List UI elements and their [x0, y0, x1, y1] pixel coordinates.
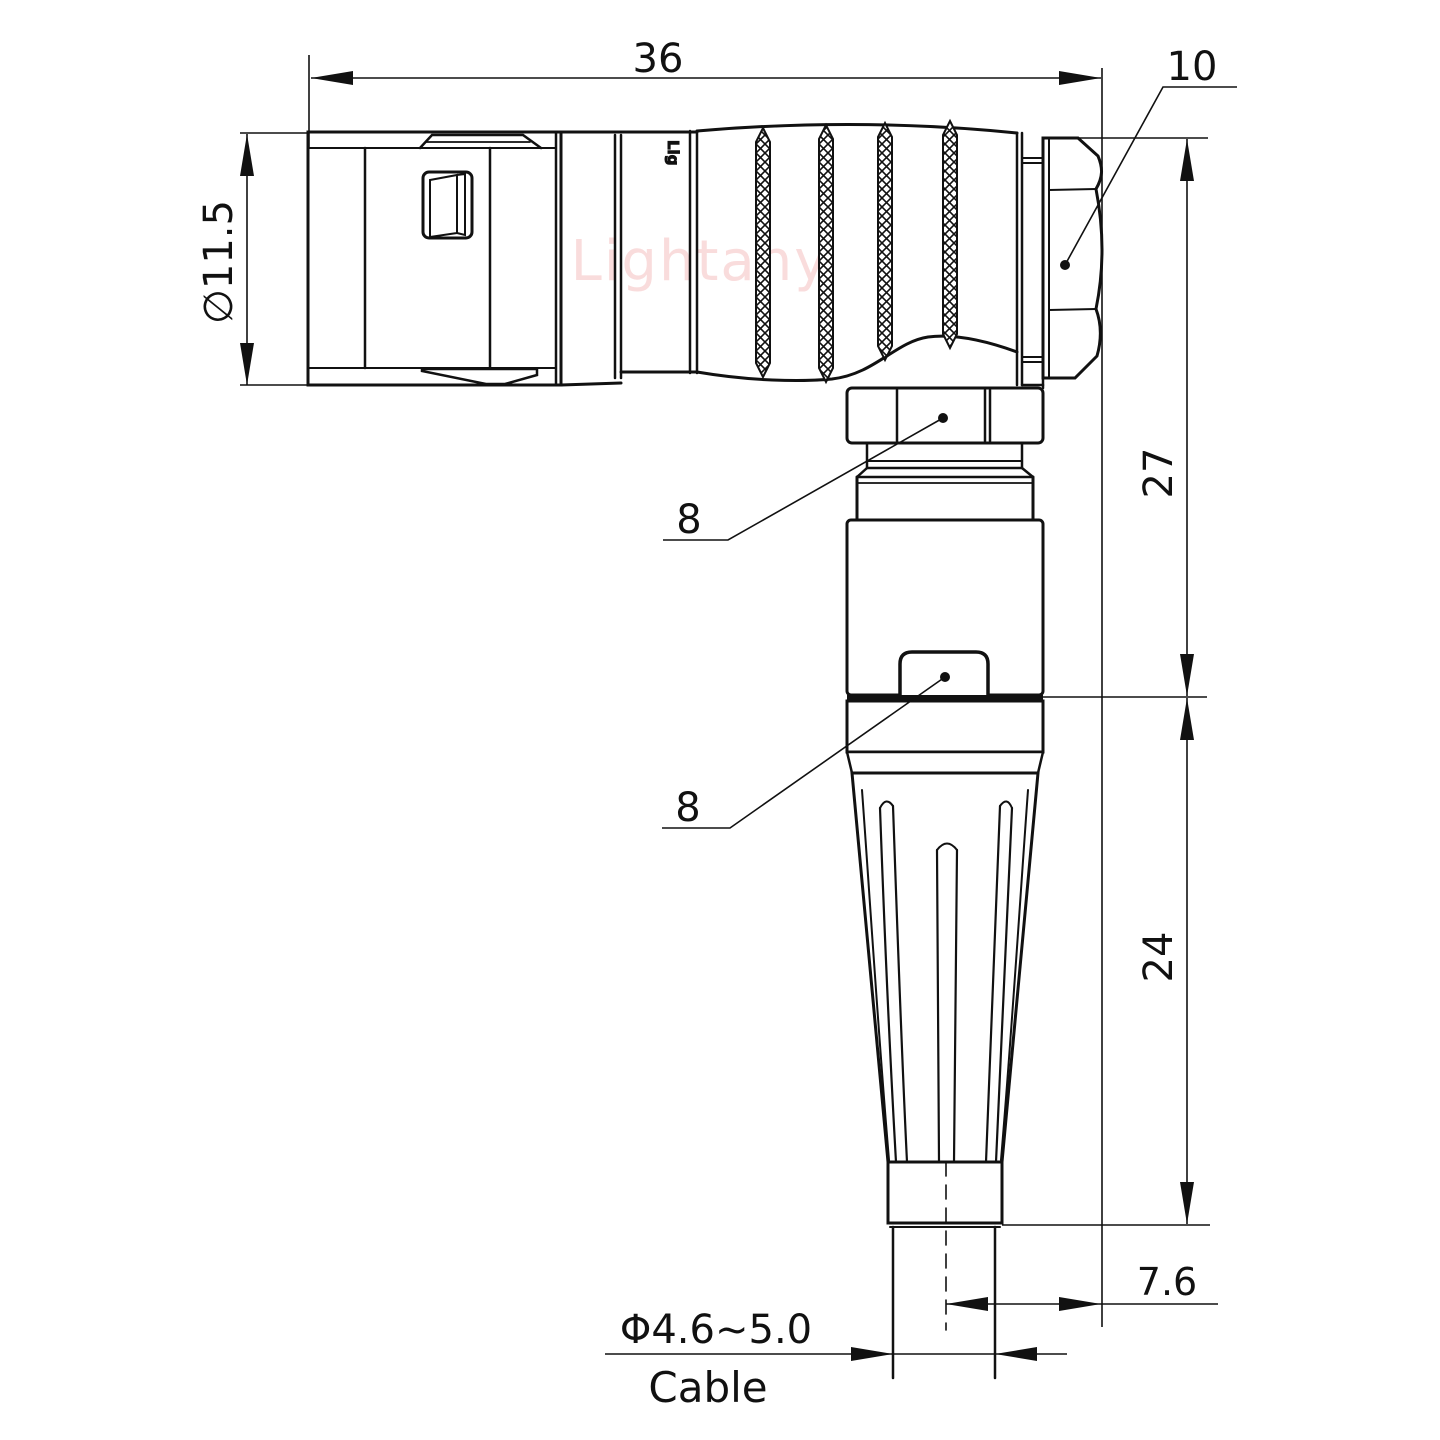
connector-side-view: Lig — [308, 121, 1102, 1378]
knurl-band-4 — [943, 121, 957, 348]
cable-diameter-label: Φ4.6~5.0 — [620, 1307, 812, 1353]
neck-section — [857, 443, 1033, 477]
knurl-band-2 — [819, 125, 833, 382]
hex-callout-lower-label: 8 — [675, 785, 700, 831]
boot-upper-section — [857, 477, 1033, 520]
knurl-band-1 — [756, 128, 770, 377]
nut-size-label: 10 — [1167, 44, 1218, 90]
strain-relief-cone — [852, 773, 1038, 1162]
lower-height-label: 24 — [1136, 932, 1182, 983]
plug-barrel — [308, 132, 561, 385]
cable-word-label: Cable — [648, 1363, 767, 1412]
watermark-text: Lightany — [571, 229, 830, 294]
cable-ferrule — [888, 1162, 1002, 1227]
cable-offset-label: 7.6 — [1137, 1260, 1197, 1304]
technical-drawing-canvas: Lightany — [0, 0, 1440, 1440]
body-logo-text: Lig — [664, 140, 682, 165]
boot-flange — [847, 701, 1043, 773]
upper-height-label: 27 — [1136, 448, 1182, 499]
latch-window — [423, 172, 472, 238]
hex-callout-upper-label: 8 — [676, 497, 701, 543]
connector-drawing-svg: Lightany — [0, 0, 1440, 1440]
overall-length-label: 36 — [633, 36, 684, 82]
dimension-diameter — [240, 133, 308, 385]
knurl-band-3 — [878, 123, 892, 360]
diameter-label: ∅11.5 — [196, 200, 242, 324]
